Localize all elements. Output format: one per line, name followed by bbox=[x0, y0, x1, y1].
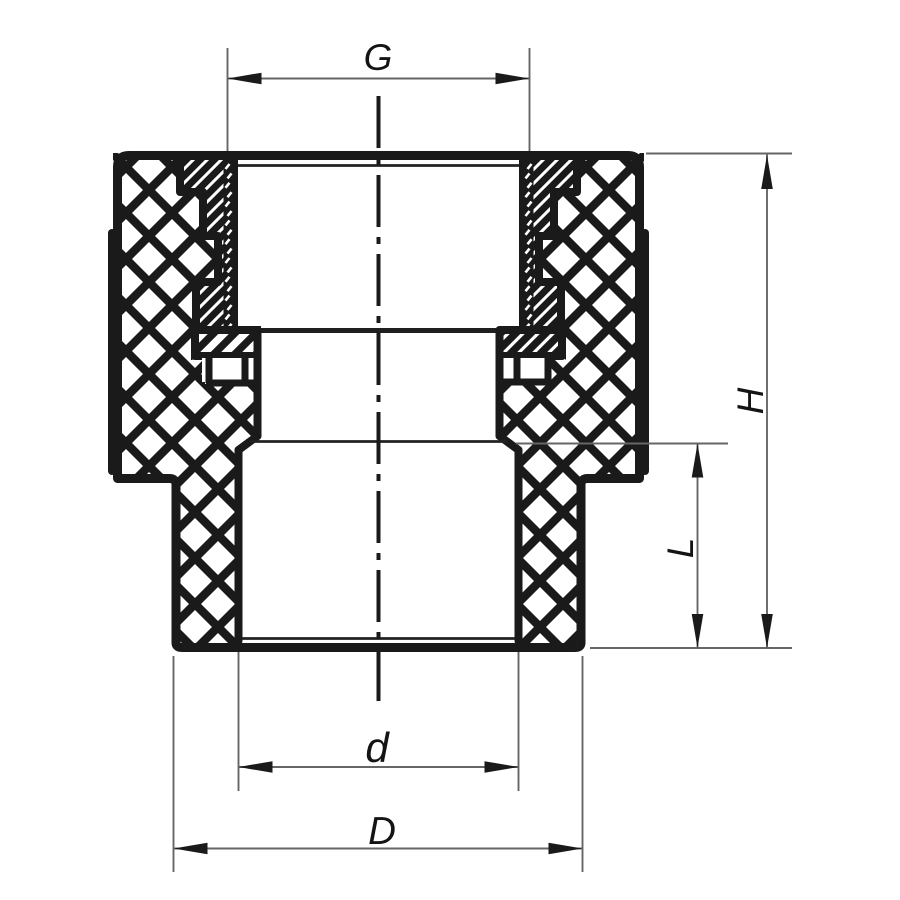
svg-text:G: G bbox=[364, 37, 393, 78]
svg-text:D: D bbox=[368, 810, 396, 853]
svg-text:L: L bbox=[660, 538, 701, 559]
svg-text:H: H bbox=[730, 387, 771, 414]
svg-text:d: d bbox=[365, 724, 390, 771]
